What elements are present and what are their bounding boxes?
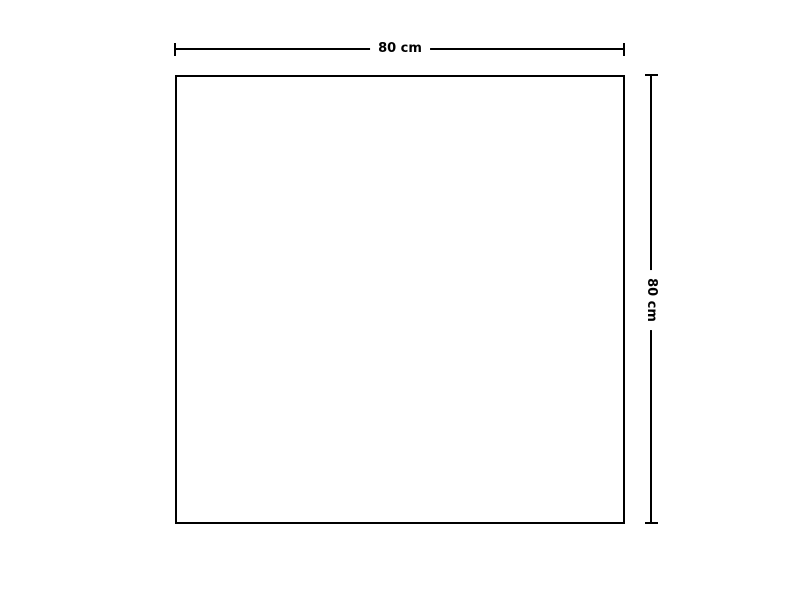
top-dimension-left-tick: [174, 43, 176, 56]
width-dimension-label: 80 cm: [370, 40, 430, 58]
right-dimension-bottom-tick: [645, 522, 658, 524]
diagram-canvas: 80 cm 80 cm: [0, 0, 800, 600]
square-outline: [175, 75, 625, 524]
height-dimension-label: 80 cm: [642, 270, 660, 330]
top-dimension-right-tick: [623, 43, 625, 56]
right-dimension-top-tick: [645, 74, 658, 76]
